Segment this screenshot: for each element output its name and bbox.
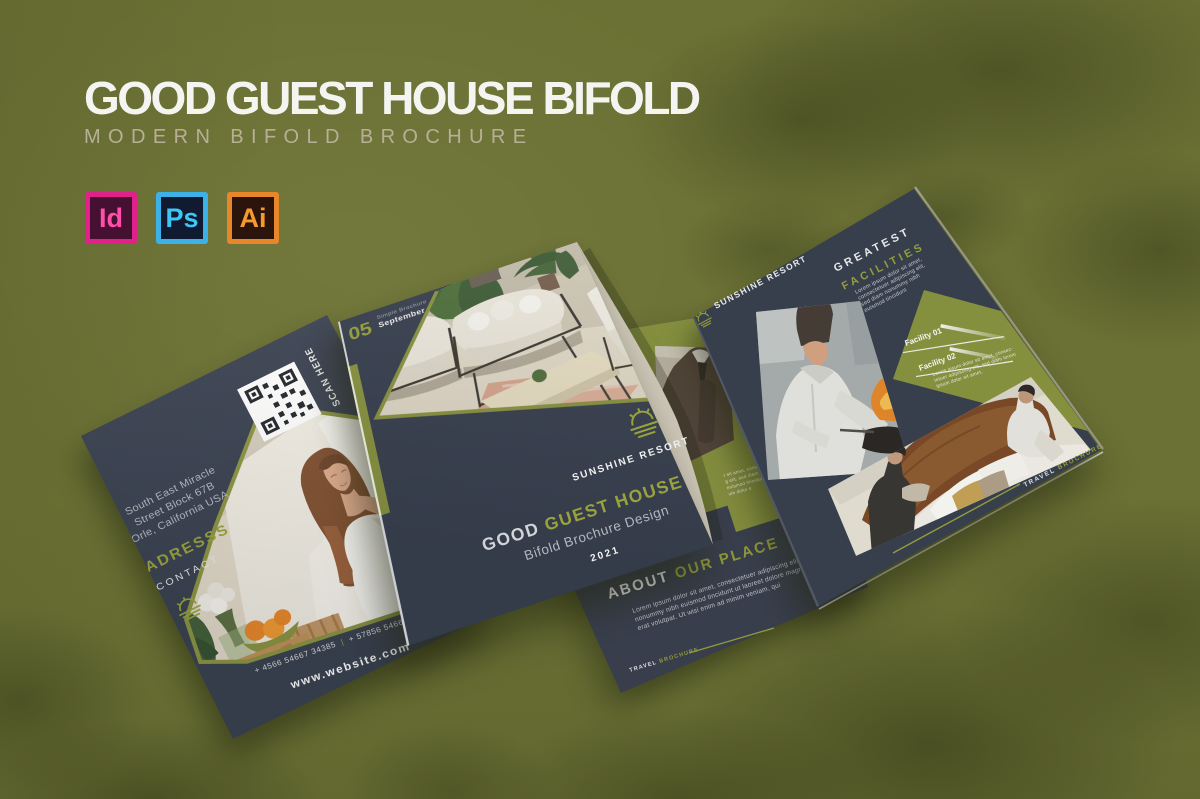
svg-text:2021: 2021	[589, 545, 621, 565]
